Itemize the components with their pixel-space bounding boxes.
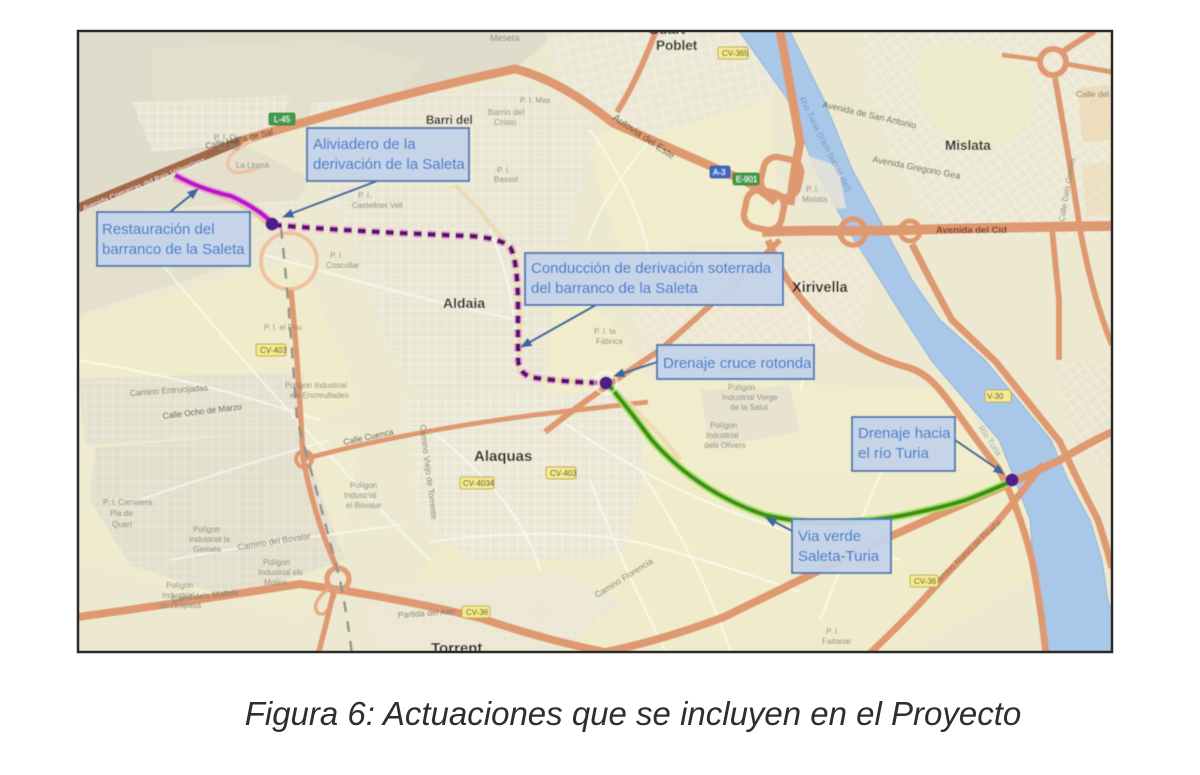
svg-text:CV-365: CV-365 xyxy=(722,49,749,58)
svg-text:de l'Espasa: de l'Espasa xyxy=(160,601,202,610)
svg-text:Avenida del Cid: Avenida del Cid xyxy=(936,225,1007,236)
svg-text:P. I. Qu: P. I. Qu xyxy=(214,133,240,142)
svg-text:Meseta: Meseta xyxy=(490,33,520,43)
svg-text:Saleta-Turia: Saleta-Turia xyxy=(798,548,880,565)
svg-text:Polígon: Polígon xyxy=(350,481,377,490)
svg-text:de la Salut: de la Salut xyxy=(730,403,769,412)
svg-text:L-45: L-45 xyxy=(274,115,291,124)
svg-text:Fábrica: Fábrica xyxy=(596,337,623,346)
svg-text:Alaquas: Alaquas xyxy=(474,448,532,465)
svg-text:Drenaje hacia: Drenaje hacia xyxy=(858,425,951,442)
svg-text:Polígon: Polígon xyxy=(166,581,193,590)
svg-text:P. I. Carretera: P. I. Carretera xyxy=(103,498,153,507)
svg-text:Figura 6: Actuaciones que se i: Figura 6: Actuaciones que se incluyen en… xyxy=(245,695,1022,732)
svg-text:derivación de la Saleta: derivación de la Saleta xyxy=(313,156,465,173)
svg-text:Polígon: Polígon xyxy=(193,525,220,534)
svg-text:el río Turia: el río Turia xyxy=(858,445,930,462)
svg-text:Mislata: Mislata xyxy=(945,138,991,153)
svg-text:Barri del: Barri del xyxy=(426,115,473,127)
svg-text:Quart: Quart xyxy=(112,520,133,529)
svg-text:Mislata: Mislata xyxy=(802,195,828,204)
svg-text:dels Olivers: dels Olivers xyxy=(704,441,746,450)
svg-text:Polígon: Polígon xyxy=(728,383,755,392)
svg-text:Pla de: Pla de xyxy=(110,509,133,518)
svg-text:Polígon Industrial: Polígon Industrial xyxy=(285,381,347,390)
svg-text:Gemela: Gemela xyxy=(193,545,222,554)
svg-text:CV-36: CV-36 xyxy=(466,608,489,617)
svg-text:Xirivella: Xirivella xyxy=(792,280,849,296)
svg-text:P. I. Mas: P. I. Mas xyxy=(520,96,551,105)
svg-text:Industrial: Industrial xyxy=(344,491,377,500)
svg-text:Calle del T: Calle del T xyxy=(1076,89,1116,99)
svg-text:P. I.: P. I. xyxy=(806,185,819,194)
svg-text:CV-403: CV-403 xyxy=(550,469,577,478)
svg-text:Barrio del: Barrio del xyxy=(488,107,524,117)
svg-text:Industrial Verge: Industrial Verge xyxy=(722,393,778,402)
svg-text:Industrial: Industrial xyxy=(706,431,739,440)
svg-text:Aliviadero de la: Aliviadero de la xyxy=(313,136,416,153)
svg-text:Coscollar: Coscollar xyxy=(326,261,360,270)
svg-text:Castellnet Vell: Castellnet Vell xyxy=(352,201,403,210)
svg-text:P. I.: P. I. xyxy=(826,627,839,636)
svg-text:P. I.: P. I. xyxy=(497,166,510,175)
svg-text:A-3: A-3 xyxy=(713,168,726,177)
svg-text:Polígon: Polígon xyxy=(710,421,737,430)
svg-text:Molins: Molins xyxy=(264,578,287,587)
svg-text:del barranco de la Saleta: del barranco de la Saleta xyxy=(531,280,698,297)
svg-text:de Ro: de Ro xyxy=(218,143,240,152)
svg-text:els Encreullades: els Encreullades xyxy=(290,391,349,400)
svg-text:Restauración del: Restauración del xyxy=(102,221,215,238)
svg-text:Via verde: Via verde xyxy=(798,528,861,545)
svg-text:CV-36: CV-36 xyxy=(914,577,937,586)
svg-text:el Bovalar: el Bovalar xyxy=(346,501,382,510)
svg-text:Torrent: Torrent xyxy=(431,640,482,657)
svg-text:V-30: V-30 xyxy=(987,392,1004,401)
svg-text:P. I.: P. I. xyxy=(358,191,371,200)
svg-text:Industrial els: Industrial els xyxy=(258,568,303,577)
svg-text:Polígon: Polígon xyxy=(263,558,290,567)
svg-text:Industrial la: Industrial la xyxy=(189,535,230,544)
svg-text:La Llomà: La Llomà xyxy=(236,161,269,170)
svg-text:Conducción de derivación soter: Conducción de derivación soterrada xyxy=(531,260,772,277)
svg-text:Poblet: Poblet xyxy=(656,38,698,53)
svg-text:E-901: E-901 xyxy=(736,175,758,184)
svg-text:CV-403: CV-403 xyxy=(260,346,287,355)
svg-text:Aldaia: Aldaia xyxy=(443,295,485,311)
svg-text:P. I. la: P. I. la xyxy=(594,327,616,336)
svg-text:barranco de la Saleta: barranco de la Saleta xyxy=(102,241,245,258)
svg-text:Bassol: Bassol xyxy=(494,175,518,184)
svg-text:Guart: Guart xyxy=(648,21,686,37)
svg-text:P. I.: P. I. xyxy=(330,251,343,260)
svg-text:CV-4034: CV-4034 xyxy=(463,479,495,488)
svg-text:P. I. el Pou: P. I. el Pou xyxy=(264,323,302,332)
svg-text:Drenaje cruce rotonda: Drenaje cruce rotonda xyxy=(663,355,812,372)
svg-text:Industrial: Industrial xyxy=(162,591,195,600)
svg-text:Cristo: Cristo xyxy=(494,117,516,127)
svg-text:Faitanar: Faitanar xyxy=(822,637,852,646)
